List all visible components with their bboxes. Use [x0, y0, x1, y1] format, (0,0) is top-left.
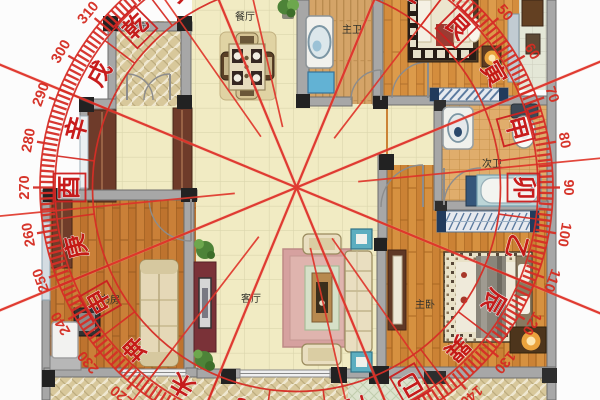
svg-text:90: 90	[560, 179, 576, 195]
svg-text:酉: 酉	[57, 176, 83, 200]
svg-text:270: 270	[17, 175, 33, 199]
svg-text:主卧: 主卧	[415, 298, 435, 311]
svg-text:80: 80	[555, 131, 574, 150]
svg-text:餐厅: 餐厅	[235, 10, 255, 23]
svg-text:卯: 卯	[510, 176, 537, 200]
